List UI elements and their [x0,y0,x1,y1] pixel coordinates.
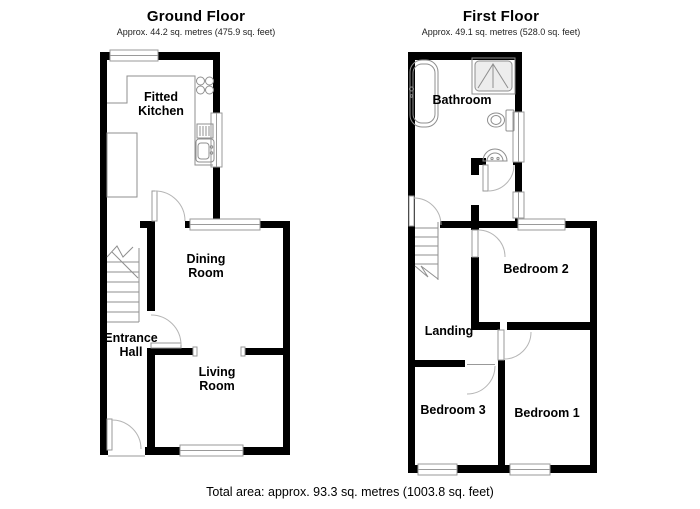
room-label-living-room: Living Room [194,365,240,393]
room-label-landing: Landing [425,324,474,338]
bedroom2-window [518,219,565,230]
kitchen-side-window [211,113,222,167]
living-room-opening [193,347,245,356]
bathroom-window [513,112,524,162]
first-floor-stairs-icon [415,222,438,280]
bedroom3-window [418,464,457,475]
bedroom1-door [498,330,531,360]
bedroom1-window [510,464,550,475]
room-label-entrance-hall: Entrance Hall [99,331,163,359]
shower-icon [472,58,515,94]
floorplan-drawing [0,0,700,509]
toilet-icon [488,110,515,131]
living-room-window [180,445,243,456]
dining-room-window [190,219,260,230]
basin-icon [483,149,507,161]
room-label-dining-room: Dining Room [183,252,229,280]
bedroom2-door [472,230,505,257]
kitchen-unit [107,133,137,197]
hob-icon [197,77,214,94]
room-label-bedroom-3: Bedroom 3 [420,403,485,417]
kitchen-top-window [110,50,158,61]
room-label-bedroom-1: Bedroom 1 [514,406,579,420]
stairs-top-door [409,196,441,226]
ground-floor-stairs-icon [107,246,139,322]
kitchen-door [152,191,185,221]
landing-window [513,192,524,218]
floorplan-page: Ground Floor Approx. 44.2 sq. metres (47… [0,0,700,509]
room-label-bedroom-2: Bedroom 2 [503,262,568,276]
front-door [107,419,145,456]
total-area-text: Total area: approx. 93.3 sq. metres (100… [206,485,494,499]
room-label-bathroom: Bathroom [432,93,491,107]
bathroom-door [483,165,514,191]
bedroom3-door [467,365,495,395]
room-label-fitted-kitchen: Fitted Kitchen [131,90,191,118]
